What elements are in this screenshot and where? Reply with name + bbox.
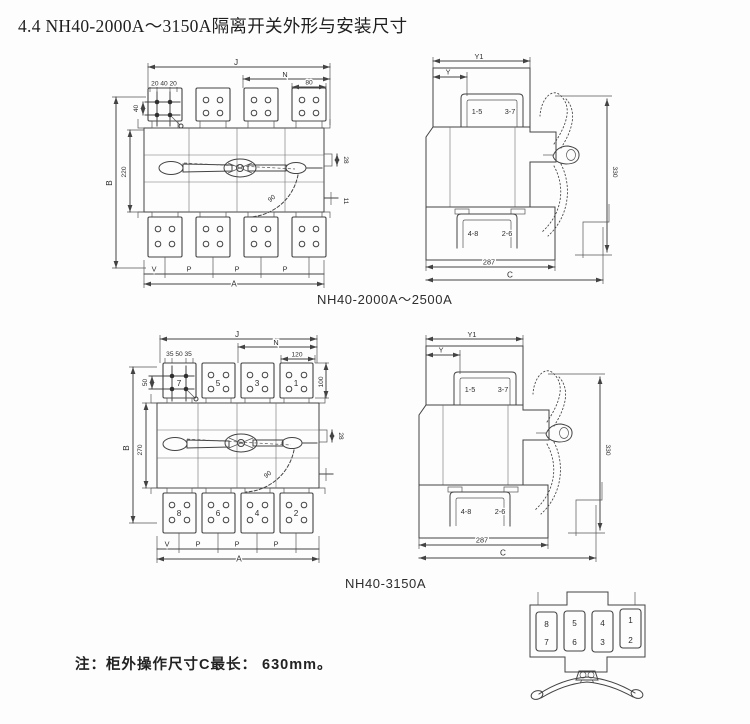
terminal-number-3: 3	[255, 379, 260, 388]
terminal-pads-bottom	[148, 212, 326, 257]
shaft-fitting: 28 11	[324, 154, 349, 205]
dim-label-y: Y	[446, 68, 451, 77]
slot-number-5: 5	[572, 619, 577, 628]
side-view-nh40-2000a-2500a: Y1 Y 1-5 3-7	[415, 52, 640, 302]
slot-number-1: 1	[628, 616, 633, 625]
dim-label-n: N	[282, 70, 287, 79]
dim-label-c: C	[507, 271, 513, 280]
terminal-number-5: 5	[216, 379, 221, 388]
caption-nh40-3150a: NH40-3150A	[345, 576, 426, 591]
dim-handle-height: 330	[555, 96, 618, 258]
handle-knob	[536, 424, 572, 442]
dim-label-b: B	[122, 445, 131, 451]
dim-label-100: 100	[318, 376, 325, 387]
terminal-number-8: 8	[177, 509, 182, 518]
terminal-label-3-7: 3-7	[505, 107, 516, 116]
phase-label-p1: P	[196, 540, 201, 549]
dim-label-y: Y	[439, 346, 444, 355]
dim-label-y1: Y1	[475, 52, 484, 61]
base-block	[426, 207, 555, 260]
dim-label-270: 270	[137, 444, 144, 455]
switch-body	[138, 119, 330, 218]
terminal-number-7: 7	[177, 379, 182, 388]
page-title: 4.4 NH40-2000A～3150A隔离开关外形与安装尺寸	[18, 13, 407, 38]
slot-number-2: 2	[628, 636, 633, 645]
phase-pitch-labels: V P P P A	[157, 533, 319, 564]
terminal-number-1: 1	[294, 379, 299, 388]
cutout-outline	[530, 592, 645, 672]
dim-label-hole-spacing: 35 50 35	[166, 351, 192, 358]
document-page: 4.4 NH40-2000A～3150A隔离开关外形与安装尺寸 J N 20 4…	[0, 0, 750, 724]
body-side	[419, 405, 549, 485]
slot-number-3: 3	[600, 638, 605, 647]
note-text: 注：柜外操作尺寸C最长： 630mm。	[75, 653, 332, 674]
terminal-number-4: 4	[255, 509, 260, 518]
dim-label-11: 11	[342, 198, 349, 205]
operating-lever	[159, 159, 322, 177]
dim-label-330: 330	[611, 166, 618, 177]
operating-lever	[163, 434, 317, 452]
dim-label-j: J	[234, 58, 238, 67]
phase-pitch-labels: V P P P A	[144, 257, 324, 289]
dim-label-120: 120	[291, 352, 302, 359]
swing-arc: 90	[250, 175, 298, 217]
terminal-pads-top	[148, 88, 326, 128]
slot-number-4: 4	[600, 619, 605, 628]
base-block	[419, 485, 548, 538]
dim-label-angle: 90	[267, 194, 277, 204]
dim-label-287: 287	[483, 258, 495, 267]
terminal-pads-bottom: 8 6 4 2	[163, 488, 313, 533]
terminal-number-2: 2	[294, 509, 299, 518]
phase-label-p3: P	[283, 265, 288, 274]
dimension-lines-top: Y1 Y	[426, 330, 523, 374]
mounting-hole-pattern: 50	[142, 366, 198, 401]
side-view-nh40-3150a: Y1 Y 1-5 3-7	[408, 330, 633, 580]
terminal-label-4-8: 4-8	[468, 229, 479, 238]
terminal-label-3-7: 3-7	[498, 385, 509, 394]
dim-handle-height: 330	[548, 374, 611, 536]
busbar-clamp-bottom: 4-8 2-6	[450, 492, 510, 526]
dim-label-80: 80	[305, 80, 313, 87]
dimension-lines-left: B 270	[122, 367, 157, 523]
phase-label-p2: P	[235, 540, 240, 549]
body-side	[426, 127, 556, 207]
busbar-clamp-bottom: 4-8 2-6	[457, 214, 517, 248]
terminal-label-1-5: 1-5	[472, 107, 483, 116]
dim-label-j: J	[235, 330, 239, 339]
dimension-lines-bottom: 287 C	[419, 505, 596, 562]
terminal-label-2-6: 2-6	[495, 507, 506, 516]
dim-label-hole-v: 50	[142, 379, 149, 387]
terminal-label-4-8: 4-8	[461, 507, 472, 516]
phase-label-p2: P	[235, 265, 240, 274]
slot-number-7: 7	[544, 638, 549, 647]
busbar-clamp-top: 1-5 3-7	[454, 372, 516, 405]
dim-label-n: N	[273, 338, 278, 347]
dim-label-angle: 90	[263, 470, 273, 480]
slot-number-6: 6	[572, 638, 577, 647]
dim-label-hole-v: 40	[133, 105, 140, 113]
panel-cutout-view: 8 7 5 6 4 3 1 2	[512, 582, 672, 722]
dimension-lines-bottom: 287 C	[426, 227, 603, 284]
dim-label-a: A	[231, 280, 237, 289]
handle-front-view	[530, 671, 644, 701]
swing-arc: 90	[246, 450, 294, 492]
dim-label-c: C	[500, 549, 506, 558]
terminal-label-2-6: 2-6	[502, 229, 513, 238]
dim-label-b: B	[105, 180, 114, 186]
terminal-number-6: 6	[216, 509, 221, 518]
dim-label-a: A	[236, 555, 242, 564]
dim-label-hole-spacing: 20 40 20	[151, 81, 177, 88]
dim-label-28: 28	[337, 432, 344, 440]
phase-label-v: V	[152, 265, 157, 274]
front-view-nh40-3150a: J N 35 50 35 120 100 50	[95, 330, 355, 570]
dim-label-y1: Y1	[468, 330, 477, 339]
front-view-nh40-2000a-2500a: J N 20 40 20 40 80 B	[100, 55, 350, 295]
terminal-slots: 8 7 5 6 4 3 1 2	[536, 609, 641, 652]
phase-label-p1: P	[187, 265, 192, 274]
handle-knob	[543, 146, 579, 164]
slot-number-8: 8	[544, 620, 549, 629]
dimension-lines-left: B 220	[105, 97, 146, 268]
phase-label-v: V	[165, 540, 170, 549]
dim-label-287: 287	[476, 536, 488, 545]
phase-label-p3: P	[274, 540, 279, 549]
busbar-clamp-top: 1-5 3-7	[461, 94, 523, 127]
dim-label-28: 28	[342, 156, 349, 164]
shaft-fitting: 28	[319, 430, 344, 481]
dim-label-220: 220	[121, 166, 128, 177]
caption-nh40-2000a-2500a: NH40-2000A～2500A	[317, 289, 452, 308]
terminal-label-1-5: 1-5	[465, 385, 476, 394]
dimension-lines-top: Y1 Y	[433, 52, 530, 96]
dim-label-330: 330	[604, 444, 611, 455]
